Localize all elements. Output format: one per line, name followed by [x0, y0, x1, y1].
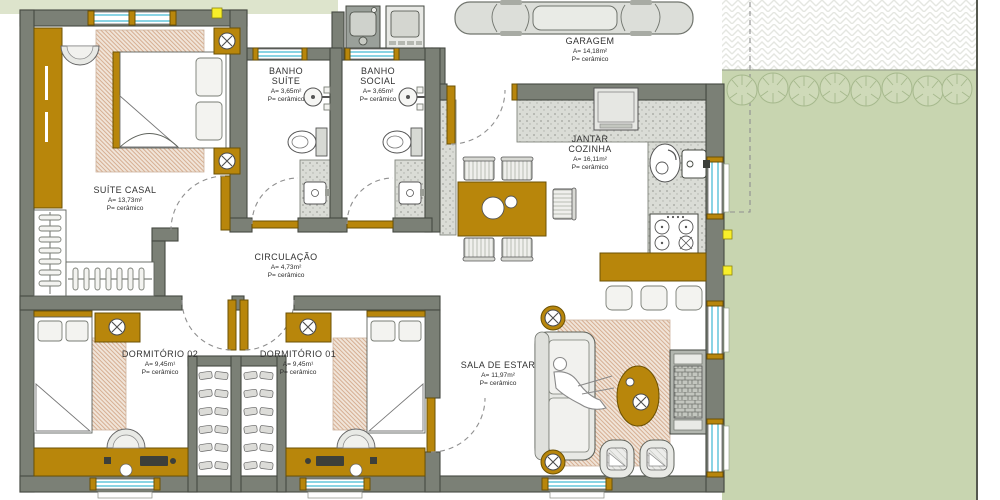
car-icon	[455, 0, 693, 36]
bed-single-icon	[367, 311, 425, 433]
dining-chair-icon	[463, 238, 495, 261]
fridge-icon	[594, 88, 638, 130]
pillow-icon	[196, 102, 222, 140]
dining-chair-icon	[501, 157, 533, 180]
bed-single-icon	[34, 311, 92, 433]
bed-double-icon	[113, 52, 226, 148]
nightstand-icon	[95, 313, 140, 342]
door-sala	[427, 398, 485, 452]
outlet-icon	[723, 230, 732, 239]
closet-shelves	[199, 371, 229, 470]
nightstand-icon	[286, 313, 331, 342]
window-banho-social	[345, 48, 399, 60]
floorplan-page: SUÍTE CASAL A= 13,73m² P= cerâmico BANHO…	[0, 0, 1000, 500]
sink-icon	[399, 182, 425, 204]
dorm01-rug	[333, 338, 367, 430]
window-banho-suite	[253, 48, 307, 60]
bar-counter	[600, 253, 706, 281]
nightstand-icon	[214, 28, 240, 54]
service-area	[346, 6, 424, 48]
closet-shelves	[244, 371, 274, 470]
shower-icon	[304, 87, 330, 110]
desk-icon	[286, 429, 425, 476]
closet-rail-vertical	[34, 210, 66, 296]
pillow-icon	[38, 321, 62, 341]
garage	[455, 0, 693, 36]
window-kitchen	[707, 157, 729, 219]
window-dorm02	[90, 478, 160, 498]
side-table-icon	[541, 306, 565, 330]
banho-suite-fixtures	[288, 87, 330, 204]
washing-machine-icon	[386, 6, 424, 48]
dining-table-icon	[458, 182, 546, 236]
pillow-icon	[399, 321, 421, 341]
tv-unit-icon	[670, 350, 706, 434]
dorm02-rug	[92, 338, 126, 430]
pillow-icon	[196, 58, 222, 96]
outlet-icon	[723, 266, 732, 275]
door-banho-suite	[252, 178, 298, 228]
coffee-table-icon	[617, 366, 659, 426]
dining-chair-icon	[463, 157, 495, 180]
pillow-icon	[66, 321, 88, 341]
stool-icon	[676, 286, 702, 310]
dining-chair-icon	[553, 188, 576, 220]
window-sala-1	[707, 301, 729, 359]
window-sala-bottom	[542, 478, 612, 498]
water-heater-icon	[682, 150, 710, 178]
toilet-icon	[383, 128, 422, 156]
dorm02-furniture	[34, 311, 228, 476]
nightstand-icon	[214, 148, 240, 174]
paved-yard	[722, 0, 977, 70]
window-suite	[88, 11, 176, 25]
window-dorm01	[300, 478, 370, 498]
banho-social-fixtures	[383, 87, 425, 204]
armchair-icon	[600, 440, 634, 478]
side-table-icon	[541, 450, 565, 474]
grass-lawn	[722, 70, 977, 500]
kitchen-sink-icon	[650, 144, 680, 182]
outlet-icon	[212, 8, 222, 18]
laundry-tank-icon	[346, 6, 380, 48]
floorplan-drawing	[0, 0, 1000, 500]
stool-icon	[606, 286, 632, 310]
chair-icon	[61, 46, 99, 65]
door-suite	[171, 176, 230, 230]
desk-icon	[34, 429, 188, 476]
cooktop-icon	[650, 214, 698, 254]
door-garage-kitchen	[447, 84, 517, 144]
stool-icon	[641, 286, 667, 310]
armchair-icon	[640, 440, 674, 478]
closet-rail-horizontal	[66, 262, 154, 296]
pillow-icon	[371, 321, 395, 341]
door-dorm02	[182, 300, 236, 350]
sink-icon	[304, 182, 330, 204]
shower-icon	[399, 87, 425, 110]
door-banho-social	[347, 178, 393, 228]
toilet-icon	[288, 128, 327, 156]
dining-chair-icon	[501, 238, 533, 261]
window-sala-2	[707, 419, 729, 477]
